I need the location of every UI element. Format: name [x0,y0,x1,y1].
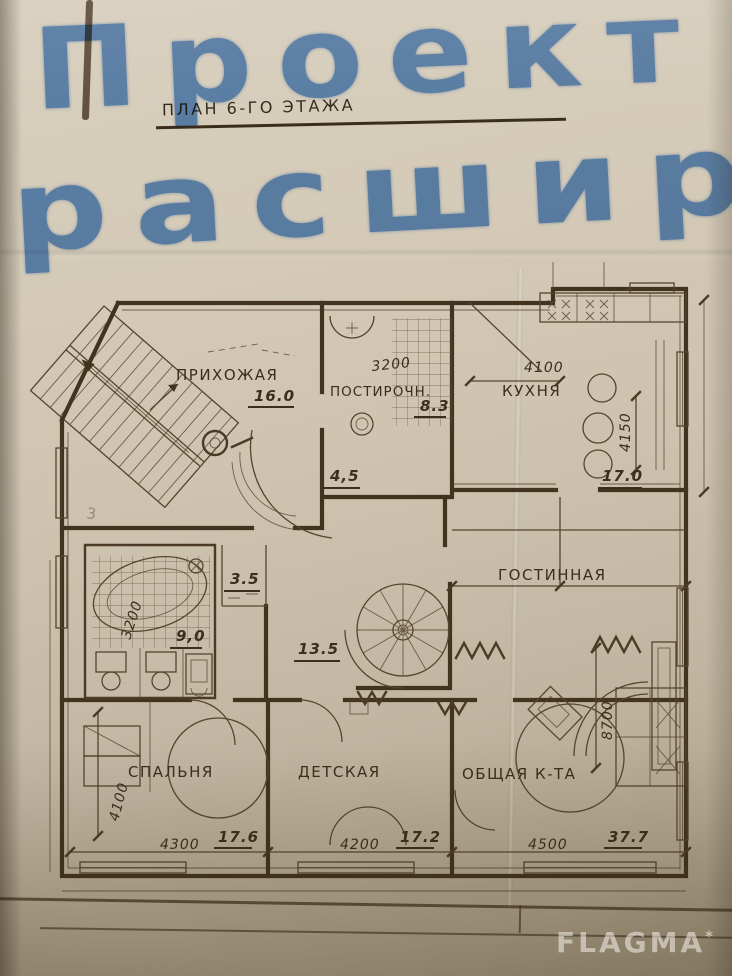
common-room-label: ОБЩАЯ К-ТА [462,765,576,783]
kitchen [540,293,686,478]
entry-lobby-area: 4,5 [329,467,360,485]
children-area: 17.2 [400,828,441,846]
hallway-label: ПРИХОЖАЯ [176,366,278,384]
living-room [452,497,686,770]
kitchen-depth-dim: 4150 [618,412,634,452]
kitchen-label: КУХНЯ [502,382,561,400]
flagma-watermark: FLAGMA* [556,926,716,959]
common-room-width-dim: 4500 [528,837,568,853]
watermark-text: FLAGMA [556,926,705,959]
living-depth-dim: 8700 [600,700,616,740]
bathroom [85,544,266,698]
corridor-area: 13.5 [298,640,339,658]
watermark-star: * [705,928,716,946]
vent-shaft-hatch [358,692,466,714]
floor-plan-photo: ПРИХОЖАЯ 16.0 3200 ПОСТИРОЧН. 8.3 4100 К… [0,0,732,976]
kitchen-width-dim: 4100 [524,360,564,376]
kitchen-area: 17.0 [602,467,643,485]
children-width-dim: 4200 [340,837,380,853]
laundry-room [330,303,542,435]
laundry-label: ПОСТИРОЧН. [330,384,431,400]
pencil-mark: 3 [85,504,97,523]
bedroom-width-dim: 4300 [160,837,200,853]
bathroom-area: 9,0 [176,627,206,645]
children-label: ДЕТСКАЯ [298,763,381,781]
living-label: ГОСТИННАЯ [498,566,607,584]
bedroom-area: 17.6 [218,828,259,846]
laundry-area: 8.3 [420,397,450,415]
common-room-area: 37.7 [608,828,649,846]
bedroom-label: СПАЛЬНЯ [128,763,214,781]
bedroom-depth-dim: 4100 [106,781,132,823]
common-room [455,688,686,830]
wc-area: 3.5 [230,570,260,588]
hallway-area: 16.0 [254,387,295,405]
spiral-staircase [345,584,449,688]
